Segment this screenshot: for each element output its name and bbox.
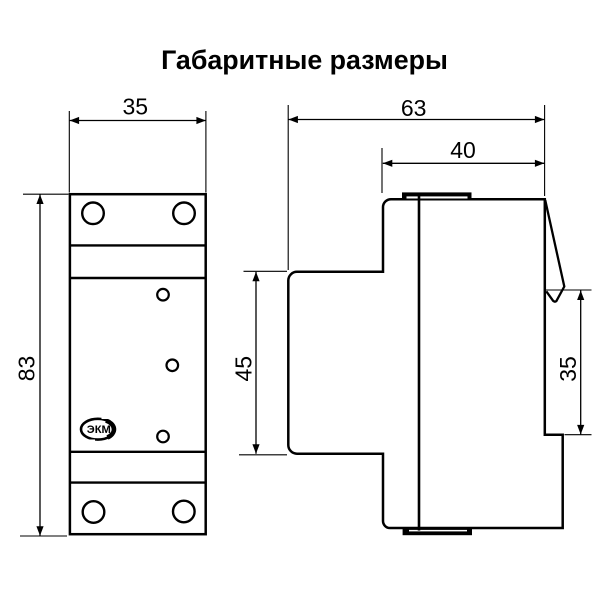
svg-text:35: 35 <box>123 94 149 120</box>
svg-text:ЭКМ: ЭКМ <box>87 424 111 436</box>
svg-text:Габаритные размеры: Габаритные размеры <box>161 45 448 75</box>
svg-text:63: 63 <box>401 95 427 121</box>
svg-text:45: 45 <box>231 356 257 382</box>
svg-text:83: 83 <box>14 356 40 382</box>
svg-text:40: 40 <box>450 137 476 163</box>
svg-text:35: 35 <box>555 356 581 382</box>
